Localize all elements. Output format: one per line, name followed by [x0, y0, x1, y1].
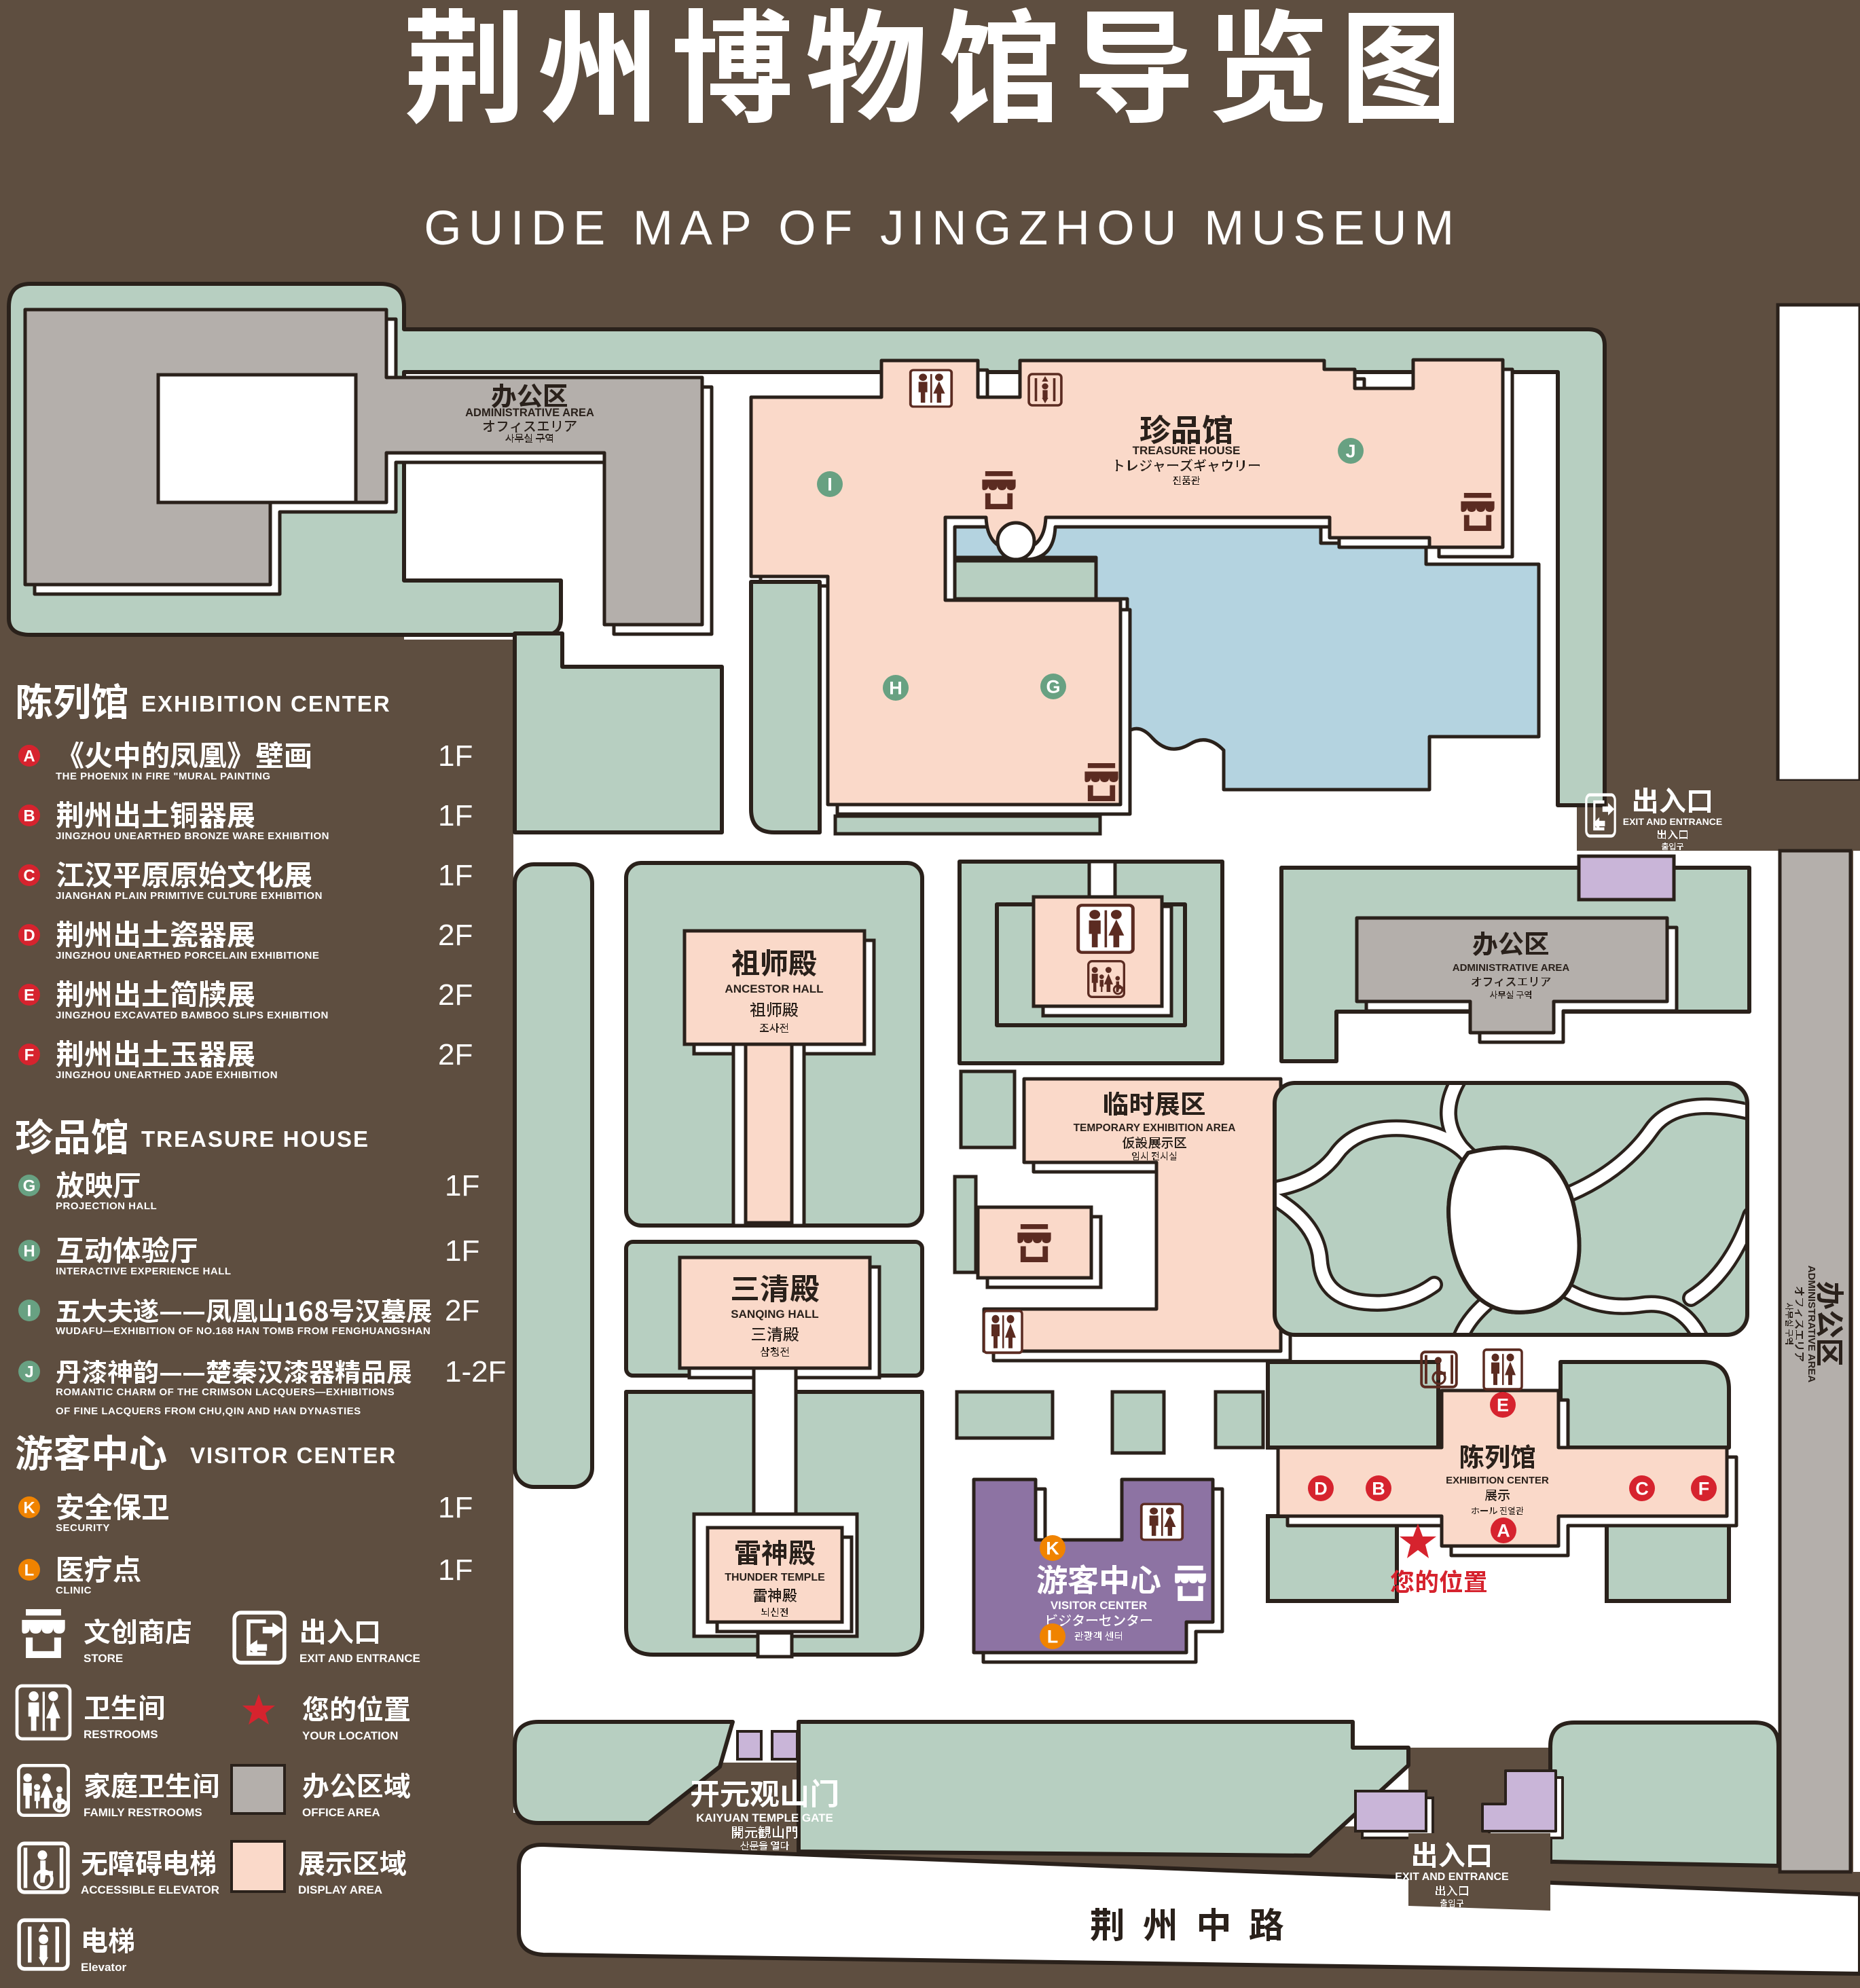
svg-text:2F: 2F	[438, 978, 473, 1012]
svg-text:INTERACTIVE EXPERIENCE HALL: INTERACTIVE EXPERIENCE HALL	[56, 1266, 232, 1277]
svg-text:VISITOR CENTER: VISITOR CENTER	[1051, 1599, 1147, 1612]
svg-text:I: I	[827, 474, 833, 494]
svg-text:1F: 1F	[438, 1491, 473, 1524]
svg-text:VISITOR CENTER: VISITOR CENTER	[190, 1443, 397, 1468]
svg-text:D: D	[1314, 1478, 1328, 1498]
svg-text:STORE: STORE	[84, 1652, 123, 1665]
svg-text:WUDAFU—EXHIBITION OF NO.168 HA: WUDAFU—EXHIBITION OF NO.168 HAN TOMB FRO…	[56, 1325, 431, 1337]
svg-text:EXIT AND ENTRANCE: EXIT AND ENTRANCE	[1395, 1871, 1509, 1883]
svg-text:2F: 2F	[438, 919, 473, 952]
svg-text:FAMILY RESTROOMS: FAMILY RESTROOMS	[84, 1806, 202, 1819]
svg-text:Elevator: Elevator	[81, 1961, 126, 1974]
svg-text:JINGZHOU UNEARTHED PORCELAIN E: JINGZHOU UNEARTHED PORCELAIN EXHIBITIONE	[56, 950, 319, 961]
svg-text:KAIYUAN TEMPLE GATE: KAIYUAN TEMPLE GATE	[696, 1811, 833, 1824]
svg-text:JINGZHOU EXCAVATED BAMBOO SLIP: JINGZHOU EXCAVATED BAMBOO SLIPS EXHIBITI…	[56, 1010, 329, 1021]
svg-text:G: G	[1046, 676, 1060, 697]
svg-text:F: F	[1698, 1478, 1710, 1498]
svg-text:ANCESTOR HALL: ANCESTOR HALL	[725, 982, 823, 995]
svg-text:G: G	[23, 1177, 36, 1195]
svg-text:TREASURE HOUSE: TREASURE HOUSE	[141, 1126, 369, 1152]
svg-text:1F: 1F	[438, 739, 473, 773]
svg-text:PROJECTION HALL: PROJECTION HALL	[56, 1200, 157, 1212]
svg-text:DISPLAY AREA: DISPLAY AREA	[298, 1883, 382, 1896]
svg-text:THE PHOENIX IN FIRE "MURAL PAI: THE PHOENIX IN FIRE "MURAL PAINTING	[56, 771, 271, 782]
svg-text:TREASURE HOUSE: TREASURE HOUSE	[1133, 444, 1241, 457]
svg-text:EXHIBITION CENTER: EXHIBITION CENTER	[1446, 1475, 1549, 1486]
svg-text:1F: 1F	[438, 799, 473, 832]
svg-text:J: J	[1345, 441, 1355, 461]
svg-text:L: L	[1047, 1626, 1059, 1646]
svg-text:ACCESSIBLE ELEVATOR: ACCESSIBLE ELEVATOR	[81, 1883, 219, 1896]
svg-text:E: E	[24, 986, 35, 1004]
svg-text:1F: 1F	[438, 1553, 473, 1587]
svg-text:OF FINE LACQUERS FROM CHU,QIN: OF FINE LACQUERS FROM CHU,QIN AND HAN DY…	[56, 1405, 361, 1417]
svg-text:JIANGHAN PLAIN PRIMITIVE CULTU: JIANGHAN PLAIN PRIMITIVE CULTURE EXHIBIT…	[56, 890, 323, 902]
svg-text:I: I	[27, 1302, 32, 1320]
svg-text:CLINIC: CLINIC	[56, 1585, 92, 1596]
svg-text:TEMPORARY EXHIBITION AREA: TEMPORARY EXHIBITION AREA	[1074, 1122, 1236, 1134]
svg-text:J: J	[24, 1363, 33, 1381]
svg-text:H: H	[23, 1242, 35, 1260]
svg-text:1F: 1F	[445, 1169, 479, 1202]
svg-text:A: A	[1497, 1520, 1510, 1541]
svg-text:1F: 1F	[438, 859, 473, 892]
svg-text:C: C	[23, 866, 35, 885]
svg-text:B: B	[23, 807, 35, 825]
svg-text:JINGZHOU UNEARTHED JADE EXHIBI: JINGZHOU UNEARTHED JADE EXHIBITION	[56, 1069, 278, 1081]
svg-text:ADMINISTRATIVE AREA: ADMINISTRATIVE AREA	[1806, 1266, 1817, 1383]
svg-text:EXIT AND ENTRANCE: EXIT AND ENTRANCE	[299, 1652, 420, 1665]
svg-text:C: C	[1635, 1478, 1649, 1498]
svg-text:JINGZHOU UNEARTHED BRONZE WARE: JINGZHOU UNEARTHED BRONZE WARE EXHIBITIO…	[56, 830, 329, 842]
svg-text:H: H	[889, 678, 902, 698]
svg-text:F: F	[24, 1046, 35, 1064]
svg-text:EXHIBITION CENTER: EXHIBITION CENTER	[141, 691, 391, 716]
svg-text:1-2F: 1-2F	[445, 1355, 506, 1388]
svg-text:A: A	[23, 747, 35, 765]
svg-text:ADMINISTRATIVE AREA: ADMINISTRATIVE AREA	[1453, 962, 1570, 974]
svg-text:YOUR LOCATION: YOUR LOCATION	[302, 1729, 398, 1742]
svg-text:2F: 2F	[445, 1294, 479, 1327]
svg-text:SANQING HALL: SANQING HALL	[731, 1308, 818, 1321]
svg-text:THUNDER TEMPLE: THUNDER TEMPLE	[725, 1572, 825, 1583]
svg-text:ADMINISTRATIVE AREA: ADMINISTRATIVE AREA	[465, 407, 594, 419]
svg-text:OFFICE AREA: OFFICE AREA	[302, 1806, 380, 1819]
svg-text:D: D	[23, 926, 35, 944]
svg-text:K: K	[23, 1498, 35, 1517]
svg-text:GUIDE MAP OF JINGZHOU MUSEUM: GUIDE MAP OF JINGZHOU MUSEUM	[424, 202, 1461, 255]
svg-text:RESTROOMS: RESTROOMS	[84, 1728, 158, 1741]
svg-text:B: B	[1372, 1478, 1385, 1498]
svg-text:E: E	[1497, 1395, 1509, 1415]
svg-text:L: L	[24, 1561, 35, 1579]
svg-text:EXIT AND ENTRANCE: EXIT AND ENTRANCE	[1623, 816, 1723, 827]
svg-text:ROMANTIC CHARM OF THE CRIMSON: ROMANTIC CHARM OF THE CRIMSON LACQUERS—E…	[56, 1386, 395, 1398]
svg-text:K: K	[1046, 1538, 1059, 1558]
svg-text:2F: 2F	[438, 1038, 473, 1071]
svg-text:1F: 1F	[445, 1234, 479, 1268]
svg-text:SECURITY: SECURITY	[56, 1522, 110, 1534]
